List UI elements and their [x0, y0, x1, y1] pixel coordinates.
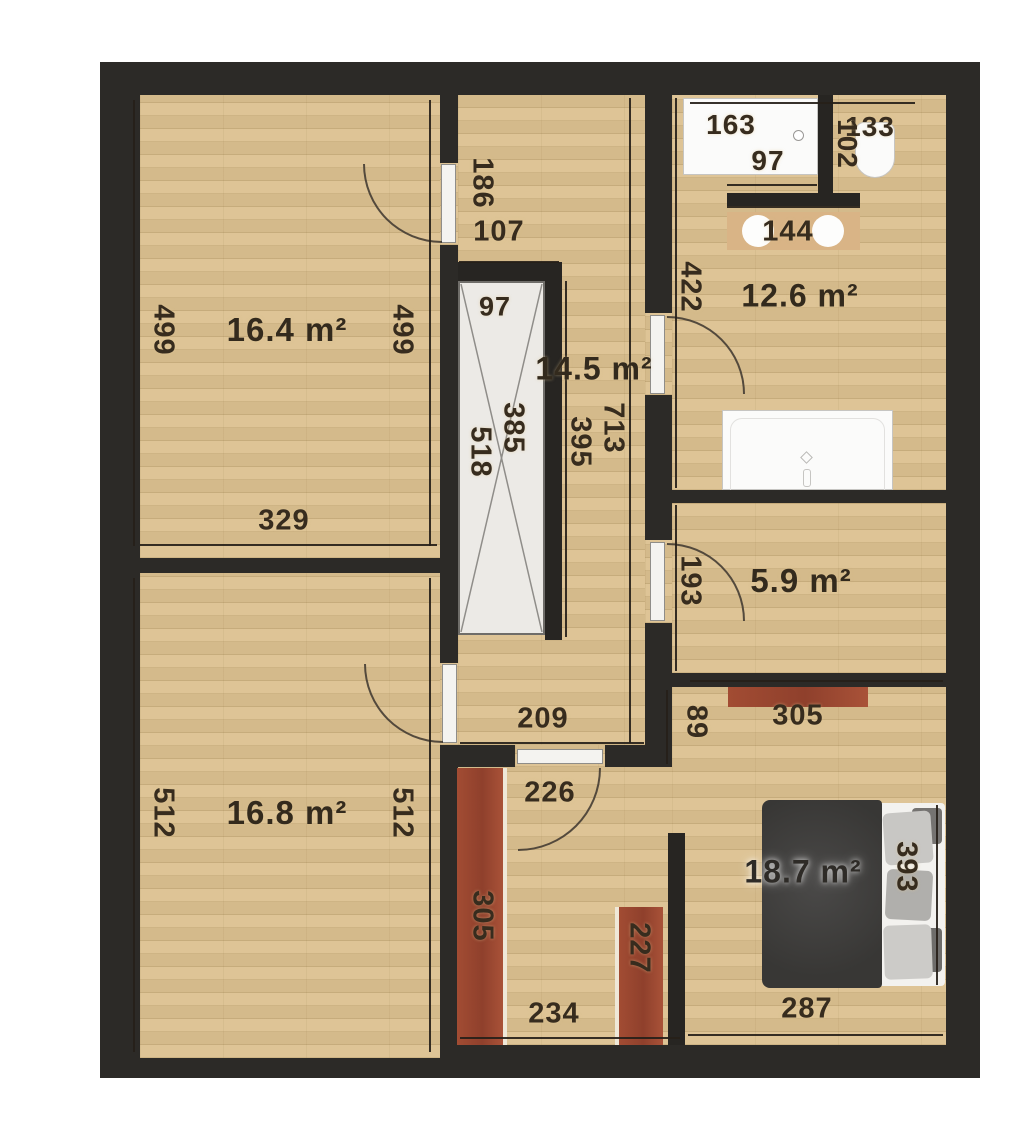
dim-line-393	[936, 805, 938, 985]
bed	[762, 800, 945, 988]
door-leaf-5-9	[650, 542, 665, 621]
dim-line-512-right	[429, 578, 431, 1052]
wall-wardrobe-right	[545, 281, 562, 640]
dim-line-512-left	[133, 578, 135, 1052]
dim-label-226: 226	[524, 777, 575, 810]
dim-line-209	[460, 742, 644, 744]
wall-wardrobe-top	[458, 262, 562, 281]
dim-label-518: 518	[464, 426, 497, 477]
dim-line-499-right	[429, 100, 431, 546]
dim-label-395: 395	[564, 416, 597, 467]
dim-label-102: 102	[831, 119, 863, 169]
floor-plan-canvas: 16.4 m² 14.5 m² 12.6 m² 5.9 m² 16.8 m² 1…	[0, 0, 1028, 1127]
dim-label-305-corridor: 305	[466, 890, 499, 941]
dim-line-234	[460, 1037, 680, 1039]
dim-label-89: 89	[680, 705, 713, 739]
area-label-hall-14-5: 14.5 m²	[535, 351, 652, 388]
area-label-bath-12-6: 12.6 m²	[741, 278, 858, 315]
bathtub-drain-icon	[803, 469, 811, 487]
area-label-room-16-8: 16.8 m²	[227, 794, 348, 832]
dim-label-287: 287	[781, 993, 832, 1026]
wall-bedroom-corridor-stub	[668, 833, 685, 1045]
dim-label-512-left: 512	[147, 787, 180, 838]
dim-label-163: 163	[706, 109, 756, 141]
dim-label-107: 107	[473, 216, 524, 249]
dim-label-186: 186	[466, 157, 499, 208]
dim-line-329	[140, 544, 437, 546]
dim-label-713: 713	[597, 402, 630, 453]
dim-label-329: 329	[258, 505, 309, 538]
dim-label-393: 393	[890, 841, 923, 892]
wall-toilet-nook-bottom	[727, 193, 860, 206]
bathtub	[722, 410, 893, 490]
dim-line-499-left	[133, 100, 135, 546]
dim-line-287	[688, 1034, 943, 1036]
bed-blanket	[762, 800, 882, 988]
dim-label-234: 234	[528, 998, 579, 1031]
sink-basin-right	[812, 215, 844, 247]
bed-pillow-3	[883, 924, 933, 980]
dim-label-209: 209	[517, 703, 568, 736]
dim-line-89	[666, 690, 668, 764]
dim-line-163-top	[690, 102, 915, 104]
area-label-room-16-4: 16.4 m²	[227, 311, 348, 349]
door-leaf-16-8	[442, 664, 457, 743]
dim-label-305-bedroom: 305	[772, 700, 823, 733]
dim-line-97-shower	[727, 184, 817, 186]
area-label-bedroom-18-7: 18.7 m²	[744, 854, 861, 891]
door-leaf-corridor	[517, 749, 603, 764]
door-leaf-16-4	[441, 164, 456, 243]
dim-line-305-bedroom	[690, 680, 943, 682]
dim-label-422: 422	[674, 261, 707, 312]
dim-label-227: 227	[623, 922, 656, 973]
dim-label-512-right: 512	[386, 787, 419, 838]
dim-label-385: 385	[497, 402, 530, 453]
dim-label-97-shower: 97	[751, 145, 784, 177]
dim-label-193: 193	[674, 555, 707, 606]
dim-label-97-wardrobe: 97	[479, 292, 511, 323]
dim-line-144	[727, 206, 860, 208]
dim-label-144: 144	[762, 216, 813, 249]
area-label-room-5-9: 5.9 m²	[750, 562, 851, 600]
shower-drain-icon	[793, 130, 804, 141]
dim-line-107	[459, 261, 559, 263]
dim-label-499-left: 499	[147, 304, 180, 355]
dim-label-499-right: 499	[386, 304, 419, 355]
